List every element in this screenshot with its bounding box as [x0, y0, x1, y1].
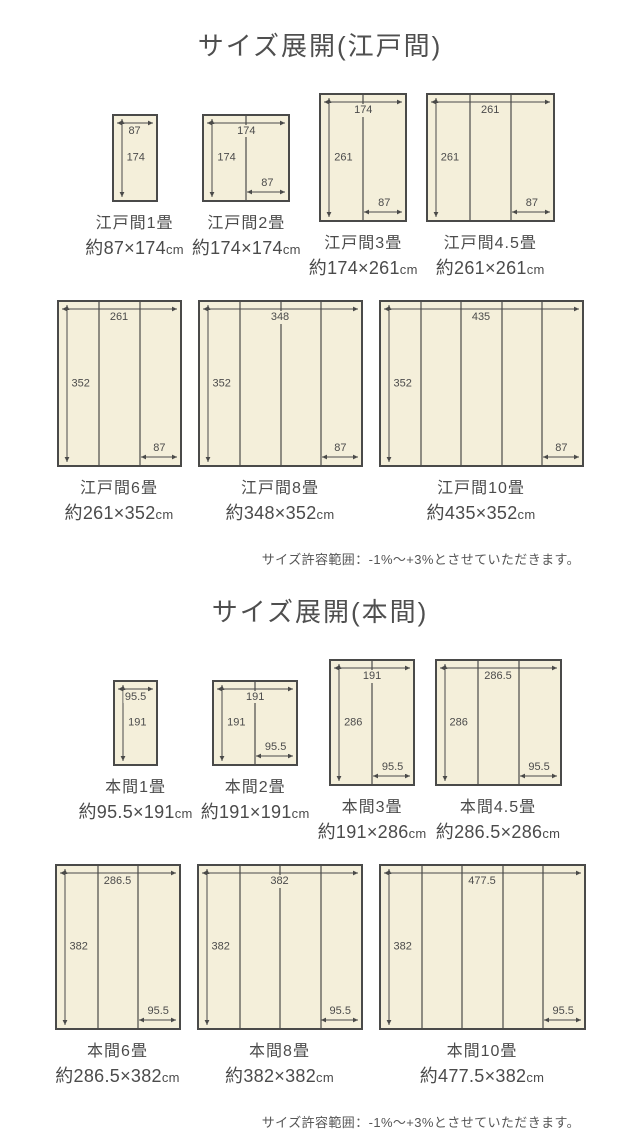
- diagram-item-size: 約382×382cm: [225, 1062, 334, 1088]
- section-content: 95.5191本間1畳約95.5×191cm19119195.5本間2畳約191…: [58, 659, 582, 1131]
- diagram-item-size: 約174×174cm: [192, 234, 301, 260]
- tatami-mat-diagram: 477.538295.5: [379, 864, 586, 1030]
- size-diagram-item: 19128695.5本間3畳約191×286cm: [318, 659, 427, 844]
- diagram-item-name: 江戸間1畳: [96, 209, 174, 233]
- section-content: 87174江戸間1畳約87×174cm17417487江戸間2畳約174×174…: [58, 93, 582, 568]
- height-dimension-label: 191: [126, 716, 148, 729]
- width-dimension-label: 477.5: [466, 875, 498, 888]
- height-dimension-label: 261: [439, 151, 461, 164]
- width-dimension-label: 382: [268, 875, 290, 888]
- diagram-item-name: 江戸間8畳: [241, 474, 319, 498]
- size-unit: cm: [518, 507, 536, 522]
- unit-mat-width-dimension-label: 87: [524, 197, 540, 210]
- size-diagram-item: 477.538295.5本間10畳約477.5×382cm: [379, 864, 586, 1088]
- diagram-row-edoma-2: 26135287江戸間6畳約261×352cm34835287江戸間8畳約348…: [58, 300, 582, 525]
- unit-mat-width-dimension-label: 95.5: [550, 1005, 575, 1018]
- tatami-mat-diagram: 26135287: [57, 300, 182, 467]
- size-diagram-item: 95.5191本間1畳約95.5×191cm: [78, 680, 192, 824]
- width-dimension-label: 174: [235, 125, 257, 138]
- height-dimension-label: 352: [392, 377, 414, 390]
- tatami-mat-diagram: 34835287: [198, 300, 363, 467]
- unit-mat-width-dimension-label: 87: [376, 197, 392, 210]
- diagram-item-name: 江戸間4.5畳: [444, 229, 537, 253]
- diagram-item-name: 江戸間10畳: [437, 474, 525, 498]
- diagram-item-size: 約174×261cm: [309, 254, 418, 280]
- diagram-item-size: 約477.5×382cm: [420, 1062, 545, 1088]
- diagram-item-size: 約286.5×382cm: [55, 1062, 180, 1088]
- diagram-item-name: 本間4.5畳: [460, 793, 536, 817]
- height-dimension-label: 286: [342, 716, 364, 729]
- tatami-mat-diagram: 95.5191: [113, 680, 158, 766]
- diagram-item-size: 約191×191cm: [201, 798, 310, 824]
- size-unit: cm: [526, 1070, 544, 1085]
- size-diagram-item: 286.538295.5本間6畳約286.5×382cm: [55, 864, 181, 1088]
- diagram-item-size: 約261×352cm: [65, 499, 174, 525]
- size-unit: cm: [527, 262, 545, 277]
- unit-mat-width-dimension-label: 87: [553, 442, 569, 455]
- size-unit: cm: [166, 242, 184, 257]
- height-dimension-label: 352: [211, 377, 233, 390]
- width-dimension-label: 95.5: [123, 691, 148, 704]
- size-unit: cm: [400, 262, 418, 277]
- size-unit: cm: [156, 507, 174, 522]
- diagram-item-name: 本間10畳: [447, 1037, 518, 1061]
- size-unit: cm: [175, 806, 193, 821]
- tatami-mat-diagram: 17417487: [202, 114, 290, 202]
- width-dimension-label: 174: [352, 104, 374, 117]
- height-dimension-label: 352: [70, 377, 92, 390]
- diagram-item-size: 約348×352cm: [226, 499, 335, 525]
- height-dimension-label: 382: [392, 941, 414, 954]
- width-dimension-label: 87: [126, 125, 142, 138]
- diagram-item-size: 約191×286cm: [318, 818, 427, 844]
- diagram-row-edoma-1: 87174江戸間1畳約87×174cm17417487江戸間2畳約174×174…: [58, 93, 582, 280]
- size-diagram-item: 38238295.5本間8畳約382×382cm: [197, 864, 363, 1088]
- size-unit: cm: [542, 826, 560, 841]
- tatami-mat-diagram: 19119195.5: [212, 680, 298, 766]
- diagram-item-name: 本間8畳: [249, 1037, 310, 1061]
- diagram-item-size: 約286.5×286cm: [436, 818, 561, 844]
- width-dimension-label: 191: [361, 670, 383, 683]
- unit-mat-width-dimension-label: 95.5: [328, 1005, 353, 1018]
- tatami-mat-diagram: 17426187: [319, 93, 407, 222]
- unit-mat-width-dimension-label: 87: [151, 442, 167, 455]
- tatami-mat-diagram: 38238295.5: [197, 864, 363, 1030]
- diagram-item-size: 約95.5×191cm: [78, 798, 192, 824]
- tatami-mat-diagram: 43535287: [379, 300, 584, 467]
- size-diagram-item: 34835287江戸間8畳約348×352cm: [198, 300, 363, 525]
- diagram-item-name: 江戸間2畳: [207, 209, 285, 233]
- tatami-mat-diagram: 286.538295.5: [55, 864, 181, 1030]
- size-diagram-item: 26126187江戸間4.5畳約261×261cm: [426, 93, 555, 280]
- size-unit: cm: [283, 242, 301, 257]
- section-honma: サイズ展開(本間) 95.5191本間1畳約95.5×191cm19119195…: [0, 592, 640, 1131]
- size-chart-page: サイズ展開(江戸間) 87174江戸間1畳約87×174cm17417487江戸…: [0, 0, 640, 1141]
- size-tolerance-note: サイズ許容範囲：-1%〜+3%とさせていただきます。: [58, 1112, 580, 1131]
- size-unit: cm: [409, 826, 427, 841]
- size-unit: cm: [317, 507, 335, 522]
- width-dimension-label: 286.5: [482, 670, 514, 683]
- diagram-item-size: 約87×174cm: [85, 234, 184, 260]
- width-dimension-label: 286.5: [102, 875, 134, 888]
- diagram-item-name: 本間2畳: [225, 773, 286, 797]
- section-title-edoma: サイズ展開(江戸間): [0, 26, 640, 63]
- unit-mat-width-dimension-label: 95.5: [380, 761, 405, 774]
- diagram-row-honma-2: 286.538295.5本間6畳約286.5×382cm38238295.5本間…: [58, 864, 582, 1088]
- size-unit: cm: [292, 806, 310, 821]
- height-dimension-label: 174: [215, 151, 237, 164]
- height-dimension-label: 382: [210, 941, 232, 954]
- diagram-item-name: 江戸間6畳: [80, 474, 158, 498]
- unit-mat-width-dimension-label: 95.5: [526, 761, 551, 774]
- size-diagram-item: 19119195.5本間2畳約191×191cm: [201, 680, 310, 824]
- size-unit: cm: [162, 1070, 180, 1085]
- unit-mat-width-dimension-label: 87: [259, 177, 275, 190]
- height-dimension-label: 261: [332, 151, 354, 164]
- diagram-row-honma-1: 95.5191本間1畳約95.5×191cm19119195.5本間2畳約191…: [58, 659, 582, 844]
- size-diagram-item: 17417487江戸間2畳約174×174cm: [192, 114, 301, 260]
- diagram-item-size: 約435×352cm: [427, 499, 536, 525]
- diagram-item-name: 本間3畳: [342, 793, 403, 817]
- size-tolerance-note: サイズ許容範囲：-1%〜+3%とさせていただきます。: [58, 549, 580, 568]
- diagram-item-name: 本間6畳: [87, 1037, 148, 1061]
- size-diagram-item: 43535287江戸間10畳約435×352cm: [379, 300, 584, 525]
- tatami-mat-diagram: 87174: [112, 114, 158, 202]
- diagram-item-name: 江戸間3畳: [324, 229, 402, 253]
- size-diagram-item: 286.528695.5本間4.5畳約286.5×286cm: [435, 659, 562, 844]
- diagram-item-name: 本間1畳: [105, 773, 166, 797]
- width-dimension-label: 191: [244, 691, 266, 704]
- size-diagram-item: 87174江戸間1畳約87×174cm: [85, 114, 184, 260]
- size-unit: cm: [316, 1070, 334, 1085]
- tatami-mat-diagram: 26126187: [426, 93, 555, 222]
- section-title-honma: サイズ展開(本間): [0, 592, 640, 629]
- height-dimension-label: 174: [125, 151, 147, 164]
- tatami-mat-diagram: 19128695.5: [329, 659, 415, 786]
- tatami-mat-diagram: 286.528695.5: [435, 659, 562, 786]
- width-dimension-label: 435: [470, 311, 492, 324]
- section-edoma: サイズ展開(江戸間) 87174江戸間1畳約87×174cm17417487江戸…: [0, 26, 640, 568]
- unit-mat-width-dimension-label: 87: [332, 442, 348, 455]
- diagram-item-size: 約261×261cm: [436, 254, 545, 280]
- width-dimension-label: 261: [479, 104, 501, 117]
- unit-mat-width-dimension-label: 95.5: [263, 741, 288, 754]
- height-dimension-label: 382: [68, 941, 90, 954]
- height-dimension-label: 191: [225, 716, 247, 729]
- size-diagram-item: 17426187江戸間3畳約174×261cm: [309, 93, 418, 280]
- unit-mat-width-dimension-label: 95.5: [145, 1005, 170, 1018]
- height-dimension-label: 286: [448, 716, 470, 729]
- width-dimension-label: 261: [108, 311, 130, 324]
- width-dimension-label: 348: [269, 311, 291, 324]
- size-diagram-item: 26135287江戸間6畳約261×352cm: [57, 300, 182, 525]
